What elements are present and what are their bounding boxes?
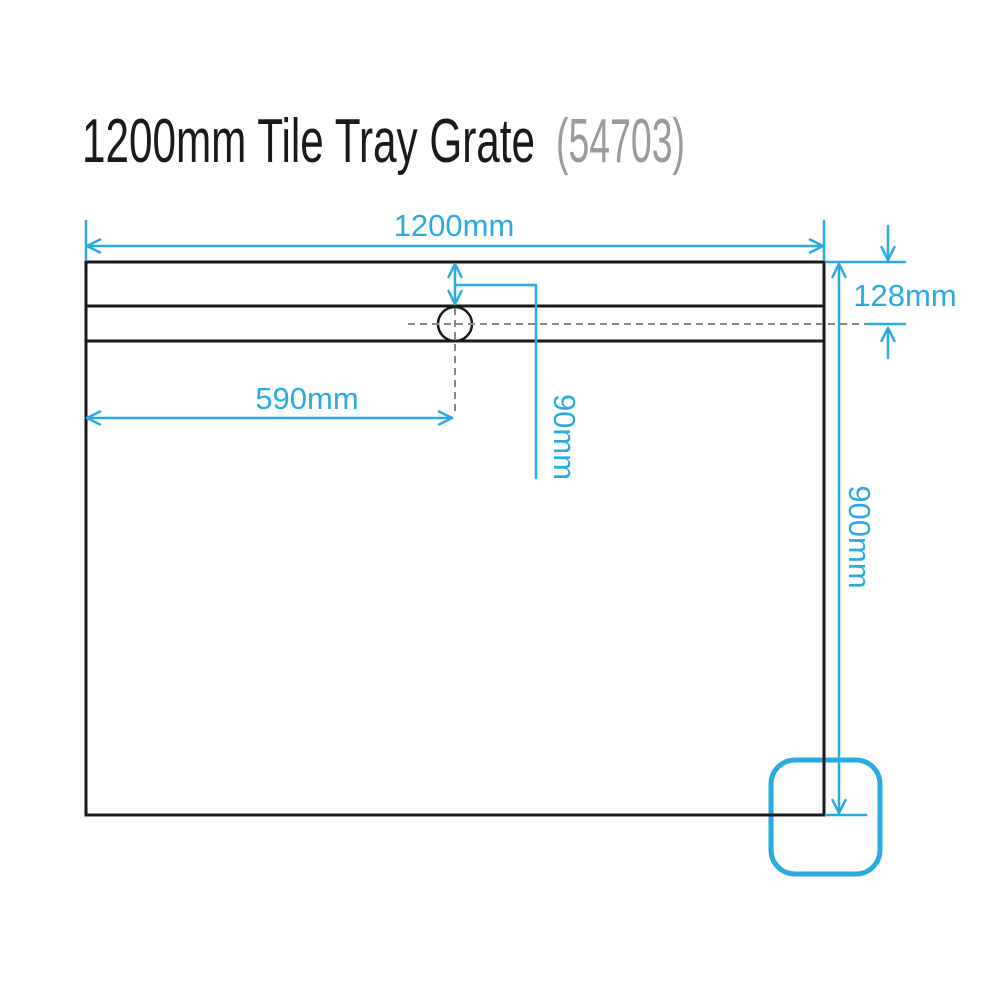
depth-dimension: 900mm [826, 264, 877, 815]
depth-dimension-label: 900mm [842, 485, 877, 588]
grate-offset-label: 90mm [547, 394, 582, 480]
centerlines [408, 308, 868, 416]
tile-tray-grate-diagram: 1200mm Tile Tray Grate (54703) 1200mm 90… [0, 0, 1000, 1000]
grate-offset-dimension: 90mm [449, 264, 583, 480]
width-dimension-label: 1200mm [394, 208, 515, 243]
width-dimension: 1200mm [86, 208, 824, 259]
page-title: 1200mm Tile Tray Grate [82, 107, 535, 176]
drain-top-dimension-label: 128mm [853, 278, 956, 313]
drain-top-dimension: 128mm [826, 226, 957, 358]
drain-left-dimension-label: 590mm [255, 381, 358, 416]
product-code: (54703) [556, 107, 685, 176]
drawing-header: 1200mm Tile Tray Grate (54703) [82, 107, 685, 176]
drain-left-dimension: 590mm [87, 381, 452, 425]
